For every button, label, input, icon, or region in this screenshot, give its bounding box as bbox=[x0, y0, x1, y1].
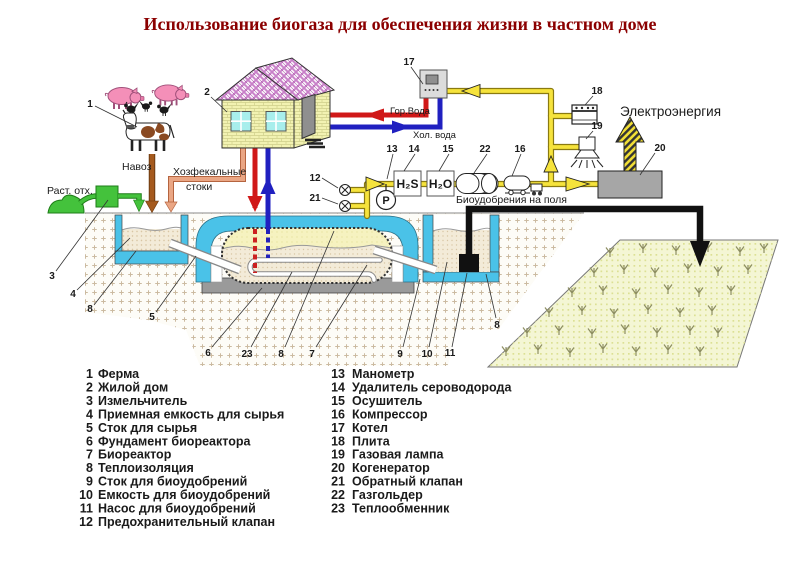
legend-item-label: Приемная емкость для сырья bbox=[98, 407, 284, 421]
legend-item-label: Измельчитель bbox=[98, 394, 188, 408]
callout-bioreactor: 7 bbox=[309, 349, 315, 360]
legend-column-right: 13Манометр14Удалитель сероводорода15Осуш… bbox=[331, 367, 512, 516]
legend-item-number: 20 bbox=[331, 461, 345, 475]
callout-house: 2 bbox=[204, 87, 210, 98]
legend-item-label: Биореактор bbox=[98, 448, 172, 462]
cold-water-label: Хол. вода bbox=[413, 130, 457, 141]
legend-item-number: 6 bbox=[86, 434, 93, 448]
callout-insulation-center: 8 bbox=[278, 349, 284, 360]
farm-animals bbox=[105, 85, 189, 151]
legend-item-number: 3 bbox=[86, 394, 93, 408]
legend-item-number: 1 bbox=[86, 367, 93, 381]
biogas-diagram-page: P H₂S H₂O bbox=[0, 0, 796, 563]
intake-tank bbox=[115, 215, 188, 264]
fertilizer-pump bbox=[459, 254, 479, 272]
h2s-remover: H₂S bbox=[394, 171, 421, 196]
legend-item-number: 21 bbox=[331, 475, 345, 489]
legend-item-label: Плита bbox=[352, 434, 391, 448]
legend-item-number: 4 bbox=[86, 407, 93, 421]
boiler-display bbox=[426, 75, 438, 84]
compressor bbox=[504, 176, 542, 196]
house-window-right bbox=[266, 112, 286, 132]
legend-item-label: Теплообменник bbox=[352, 502, 450, 516]
gas-arrow-main bbox=[366, 177, 384, 191]
legend-item-number: 7 bbox=[86, 448, 93, 462]
callout-safety-valve: 12 bbox=[309, 173, 321, 184]
manometer: P bbox=[377, 184, 396, 210]
callout-boiler: 17 bbox=[403, 57, 415, 68]
gas-arrow-to-cogenerator bbox=[566, 177, 589, 191]
callout-gas-lamp: 19 bbox=[591, 121, 603, 132]
legend-item-label: Сток для сырья bbox=[98, 421, 197, 435]
boiler bbox=[420, 70, 447, 98]
plant-waste-label: Раст. отх. bbox=[47, 185, 93, 197]
house-door bbox=[302, 95, 315, 139]
check-valve bbox=[340, 201, 351, 212]
callout-feed-drain: 5 bbox=[149, 312, 155, 323]
legend-item-label: Манометр bbox=[352, 367, 415, 381]
electricity-arrow bbox=[616, 117, 644, 171]
legend-item-number: 12 bbox=[79, 515, 93, 529]
callout-shredder: 3 bbox=[49, 271, 55, 282]
callout-heat-exchanger: 23 bbox=[241, 349, 253, 360]
callout-compressor: 16 bbox=[514, 144, 526, 155]
callout-insulation-left: 8 bbox=[87, 304, 93, 315]
legend-item-number: 13 bbox=[331, 367, 345, 381]
pig bbox=[152, 85, 189, 105]
callout-fert-drain: 9 bbox=[397, 349, 403, 360]
page-title: Использование биогаза для обеспечения жи… bbox=[144, 14, 657, 34]
cow bbox=[123, 110, 174, 151]
hot-water-label: Гор.Вода bbox=[390, 106, 431, 117]
callout-check-valve: 21 bbox=[309, 193, 321, 204]
legend-item-label: Насос для биоудобрений bbox=[98, 502, 256, 516]
legend-item-number: 18 bbox=[331, 434, 345, 448]
biogas-diagram: P H₂S H₂O bbox=[0, 0, 796, 563]
chicken bbox=[139, 100, 152, 112]
callout-farm: 1 bbox=[87, 99, 93, 110]
gas-arrow-up bbox=[544, 156, 558, 172]
legend-item-label: Когенератор bbox=[352, 461, 430, 475]
plant-waste-pile bbox=[48, 195, 84, 213]
legend-item-number: 15 bbox=[331, 394, 345, 408]
gas-arrow-to-boiler bbox=[462, 85, 480, 98]
callout-fert-tank: 10 bbox=[421, 349, 433, 360]
callout-intake-tank: 4 bbox=[70, 289, 76, 300]
h2o-label: H₂O bbox=[429, 177, 452, 191]
shredder-box bbox=[96, 186, 118, 207]
callout-foundation: 6 bbox=[205, 348, 211, 359]
bioreactor-vessel bbox=[222, 228, 392, 283]
callout-manometer: 13 bbox=[386, 144, 398, 155]
legend-item-number: 11 bbox=[80, 502, 93, 516]
reactor-pillar-right bbox=[392, 246, 403, 282]
callout-pump: 11 bbox=[445, 348, 456, 359]
legend-item-label: Газовая лампа bbox=[352, 448, 444, 462]
legend-item-number: 23 bbox=[331, 502, 345, 516]
legend-item-number: 17 bbox=[331, 421, 345, 435]
manure-label: Навоз bbox=[122, 161, 152, 173]
legend-item-number: 8 bbox=[86, 461, 93, 475]
dryer: H₂O bbox=[427, 171, 454, 196]
cold-water-arrow bbox=[392, 121, 411, 134]
legend-item-number: 19 bbox=[331, 448, 345, 462]
safety-valve bbox=[340, 185, 351, 196]
callout-dryer: 15 bbox=[442, 144, 454, 155]
legend-item-number: 2 bbox=[86, 380, 93, 394]
legend-item-label: Компрессор bbox=[352, 407, 428, 421]
callout-insulation-right: 8 bbox=[494, 320, 500, 331]
legend-item-label: Сток для биоудобрений bbox=[98, 475, 247, 489]
electricity-label: Электроэнергия bbox=[620, 104, 721, 119]
legend-item-number: 16 bbox=[331, 407, 345, 421]
legend-item-number: 22 bbox=[331, 488, 345, 502]
legend-item-label: Котел bbox=[352, 421, 388, 435]
sewage-pipe bbox=[165, 148, 243, 212]
lamp-rays bbox=[571, 160, 603, 168]
sewage-label-line2: стоки bbox=[186, 181, 212, 193]
hot-water-arrow bbox=[365, 109, 384, 122]
gasholder bbox=[456, 174, 498, 194]
callout-h2s-remover: 14 bbox=[408, 144, 420, 155]
legend-item-label: Теплоизоляция bbox=[98, 461, 194, 475]
house-steps bbox=[305, 140, 325, 147]
callout-cogenerator: 20 bbox=[654, 143, 666, 154]
cogenerator bbox=[598, 171, 662, 198]
legend-item-number: 9 bbox=[86, 475, 93, 489]
legend-item-label: Предохранительный клапан bbox=[98, 515, 275, 529]
legend-column-left: 1Ферма2Жилой дом3Измельчитель4Приемная е… bbox=[79, 367, 284, 529]
h2s-label: H₂S bbox=[396, 177, 418, 191]
legend-item-label: Жилой дом bbox=[97, 380, 168, 394]
callout-gasholder: 22 bbox=[479, 144, 491, 155]
legend-item-number: 10 bbox=[79, 488, 93, 502]
house bbox=[216, 58, 334, 148]
legend-item-label: Обратный клапан bbox=[352, 475, 463, 489]
manometer-letter: P bbox=[382, 195, 389, 207]
callout-stove: 18 bbox=[591, 86, 603, 97]
sewage-label-line1: Хозфекальные bbox=[173, 166, 246, 178]
legend-item-label: Емкость для биоудобрений bbox=[98, 488, 270, 502]
legend-item-label: Осушитель bbox=[352, 394, 423, 408]
legend-item-label: Фундамент биореактора bbox=[98, 434, 251, 448]
legend-item-label: Газгольдер bbox=[352, 488, 423, 502]
legend-item-number: 5 bbox=[86, 421, 93, 435]
biofertilizer-label: Биоудобрения на поля bbox=[456, 194, 567, 206]
house-window-left bbox=[231, 112, 251, 132]
legend-item-number: 14 bbox=[331, 380, 345, 394]
legend-item-label: Ферма bbox=[98, 367, 140, 381]
legend-item-label: Удалитель сероводорода bbox=[352, 380, 512, 394]
gas-lamp bbox=[571, 137, 603, 168]
